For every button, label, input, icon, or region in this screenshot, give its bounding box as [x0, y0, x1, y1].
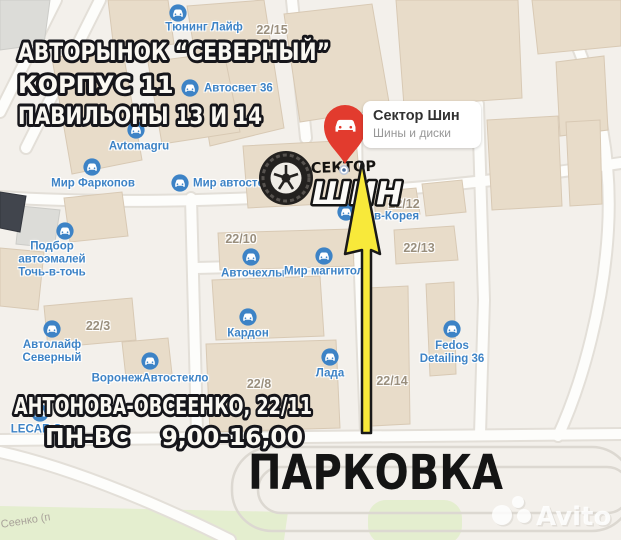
car-poi-icon — [83, 158, 101, 176]
car-poi-icon — [56, 222, 74, 240]
map-background — [0, 0, 621, 540]
building-number-label: 22/13 — [403, 241, 434, 255]
overlay-text-layer: АВТОРЫНОК “СЕВЕРНЫЙ” КОРПУС 11 ПАВИЛЬОНЫ… — [0, 0, 621, 540]
sector-shin-logo: СЕКТОР ШИН — [0, 0, 621, 540]
avito-brand-text: Avito — [536, 502, 611, 532]
car-poi-icon — [171, 174, 189, 192]
car-poi-icon — [181, 79, 199, 97]
poi-label: Тюнинг Лайф — [165, 22, 243, 35]
pin-layer — [0, 0, 621, 540]
car-poi-icon — [242, 248, 260, 266]
building-number-label: 22/3 — [86, 319, 110, 333]
map-canvas — [0, 0, 621, 540]
building-number-label: 22/10 — [225, 232, 256, 246]
car-poi-icon — [321, 348, 339, 366]
poi-label: FedosDetailing 36 — [420, 340, 485, 366]
location-dot-center — [342, 168, 346, 172]
building-number-label: 22/14 — [376, 374, 407, 388]
map-promo-image: Тюнинг ЛайфАвтосвет 36AvtomagruМир Фарко… — [0, 0, 621, 540]
avito-watermark: Avito Avito — [490, 494, 616, 538]
poi-label: Мир автостекла — [193, 178, 284, 191]
dark-building — [0, 192, 26, 232]
pin-subtitle: Шины и диски — [373, 126, 481, 140]
car-poi-icon — [239, 308, 257, 326]
direction-arrow-layer — [0, 0, 621, 540]
poi-label: Лада — [316, 368, 344, 381]
note-parking: ПАРКОВКА — [248, 445, 503, 501]
poi-label: АвтолайфСеверный — [23, 339, 82, 365]
logo-text-top: СЕКТОР — [311, 159, 377, 177]
street-name-label: Сеенко (п — [0, 511, 51, 531]
location-dot — [340, 166, 348, 174]
poi-label: в-Корея — [374, 211, 419, 224]
roads — [0, 0, 621, 540]
poi-label: Кардон — [227, 328, 269, 341]
car-poi-icon — [169, 4, 187, 22]
building-number-label: 22/15 — [256, 23, 287, 37]
pin-title: Сектор Шин — [373, 108, 481, 124]
poi-label: Avtomagru — [109, 141, 169, 154]
logo-text-bottom: ШИН — [312, 176, 402, 212]
note-market-line2: КОРПУС 11 — [18, 71, 174, 99]
poi-label: ВоронежАвтостекло — [92, 373, 209, 386]
car-poi-icon — [315, 247, 333, 265]
direction-arrow — [345, 162, 380, 433]
gray-buildings — [0, 0, 60, 248]
poi-layer: Тюнинг ЛайфАвтосвет 36AvtomagruМир Фарко… — [0, 0, 621, 540]
note-address: АНТОНОВА-ОВСЕЕНКО, 22/11 — [14, 394, 312, 420]
note-hours: ПН-ВС 9,00-16,00 — [45, 425, 303, 451]
car-poi-icon — [443, 320, 461, 338]
note-market-line1: АВТОРЫНОК “СЕВЕРНЫЙ” — [18, 37, 330, 66]
note-market-line3: ПАВИЛЬОНЫ 13 И 14 — [18, 102, 262, 130]
car-poi-icon — [337, 203, 355, 221]
buildings — [0, 0, 621, 432]
green-areas — [0, 500, 462, 540]
building-number-label: 22/8 — [247, 377, 271, 391]
address-layer: 22/1522/1022/1222/1322/322/822/14 — [0, 0, 621, 540]
avito-logo-icon — [492, 496, 533, 527]
location-pin-icon — [324, 105, 366, 164]
poi-label: Мир магнитол — [284, 266, 364, 279]
tire-icon — [259, 151, 313, 205]
poi-label: Авточехлы — [221, 268, 285, 281]
poi-label: LECAR S — [11, 424, 61, 437]
poi-label: Автосвет 36 — [204, 83, 273, 96]
car-poi-icon — [43, 320, 61, 338]
car-poi-icon — [141, 352, 159, 370]
roads-casing — [0, 0, 621, 540]
building-number-label: 22/12 — [388, 197, 419, 211]
car-poi-icon — [127, 121, 145, 139]
poi-label: ПодборавтоэмалейТочь-в-точь — [18, 241, 85, 280]
pin-info-card: Сектор Шин Шины и диски — [363, 101, 481, 148]
poi-label: Мир Фаркопов — [51, 178, 135, 191]
car-poi-icon — [31, 404, 49, 422]
